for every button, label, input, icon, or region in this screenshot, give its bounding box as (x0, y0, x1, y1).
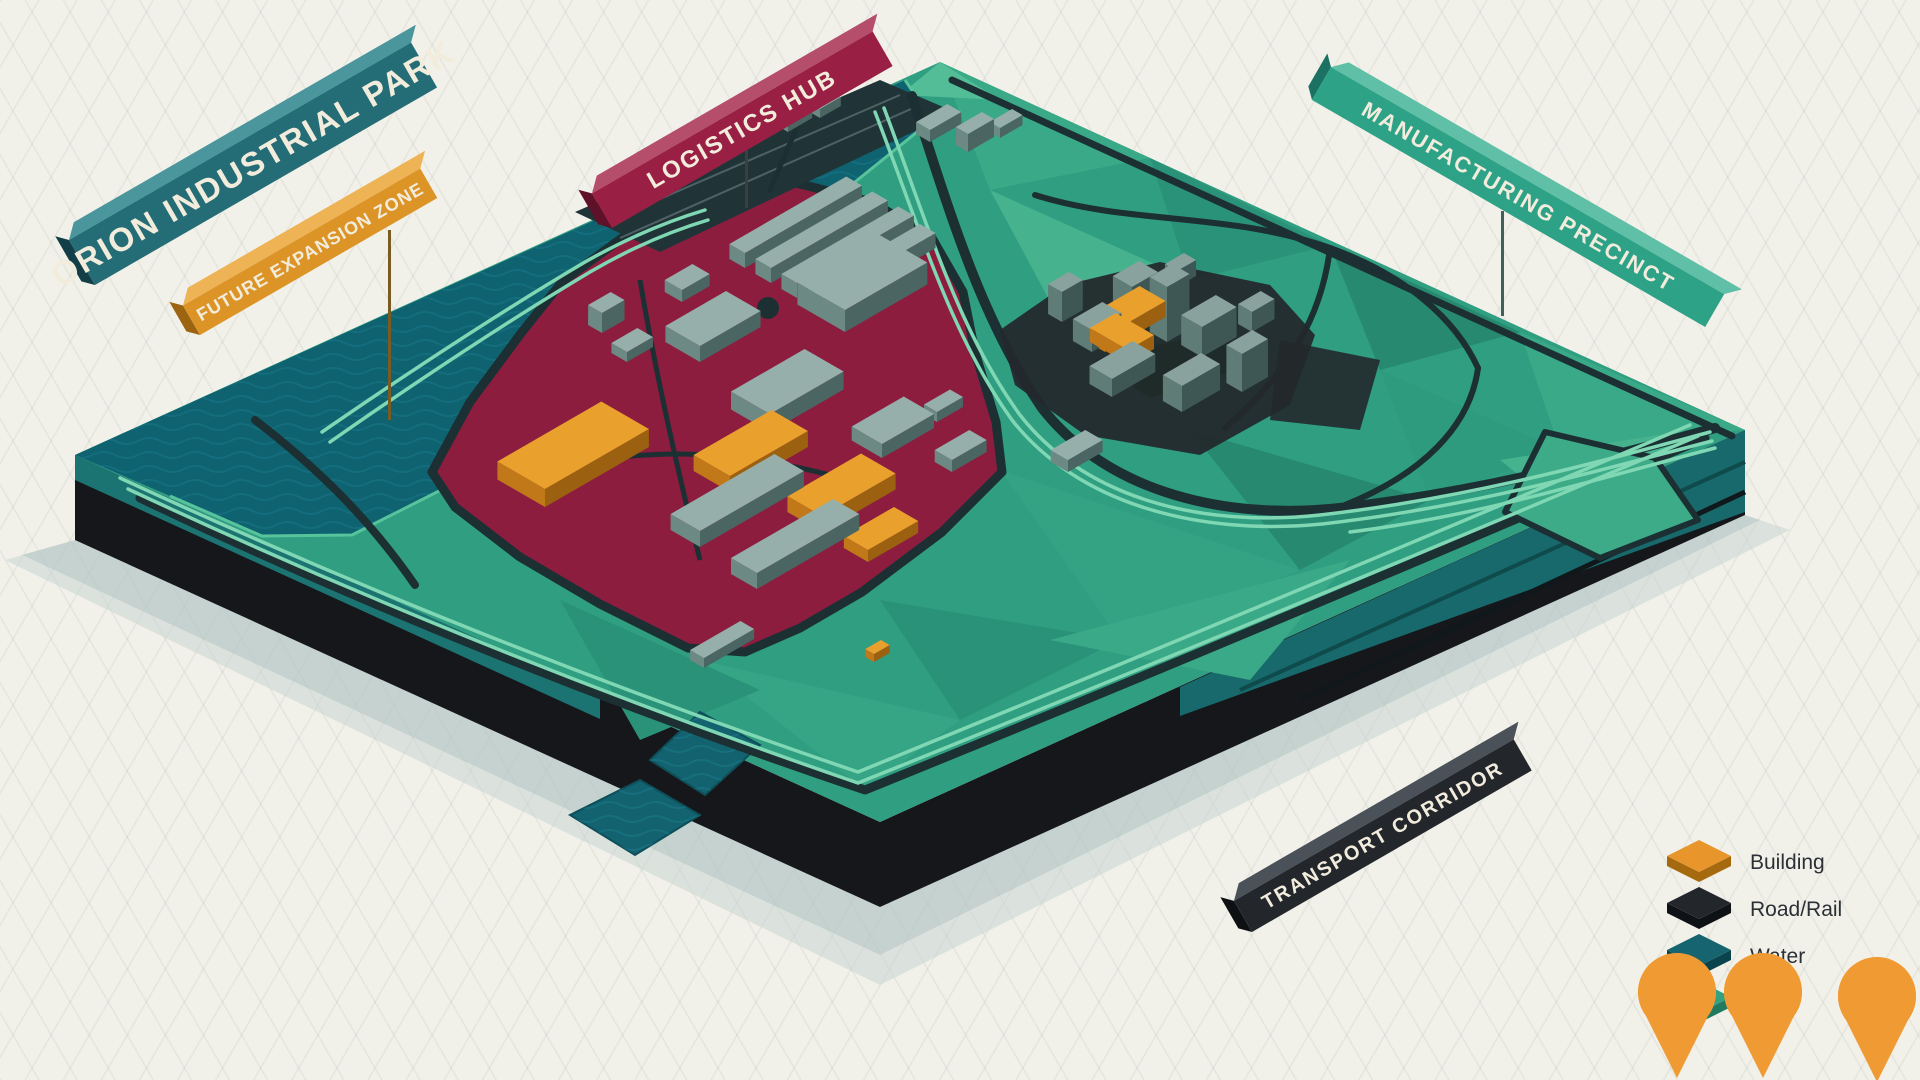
building-swatch-icon (1662, 836, 1736, 890)
leader-line-manufacturing (1501, 211, 1504, 316)
legend-item-road-rail: Road/Rail (1662, 883, 1842, 937)
road-rail-swatch-icon (1662, 883, 1736, 937)
legend-item-building: Building (1662, 836, 1825, 890)
map-pin-icon[interactable] (1636, 948, 1718, 1080)
map-pin-icon[interactable] (1836, 952, 1918, 1080)
leader-line-logistics (745, 150, 748, 208)
page: { "banners": { "title": { "label": "ORIO… (0, 0, 1920, 1080)
legend-label-road-rail: Road/Rail (1750, 898, 1842, 922)
leader-line-future-expansion (388, 230, 391, 420)
legend-label-building: Building (1750, 851, 1825, 875)
map-pin-icon[interactable] (1722, 948, 1804, 1080)
